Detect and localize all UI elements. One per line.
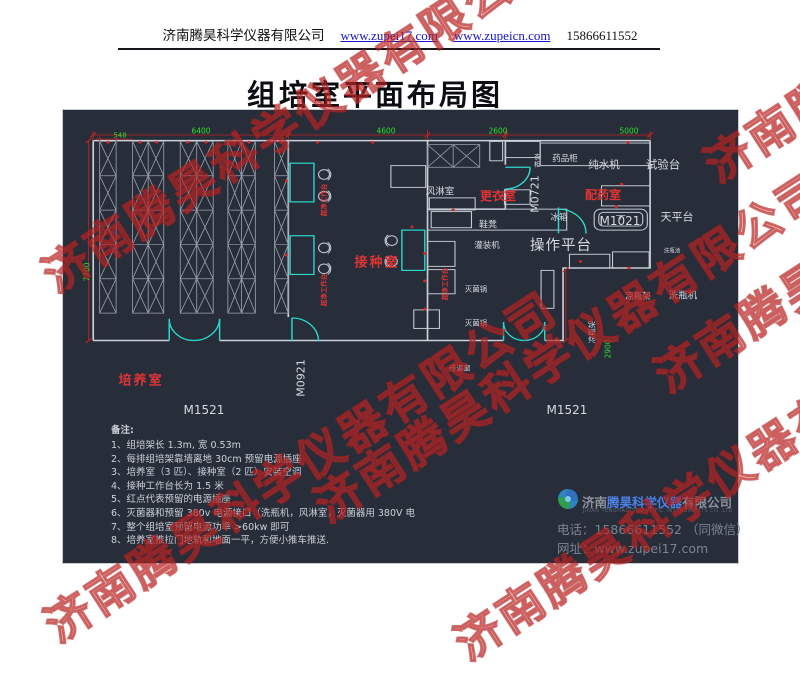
label-operation-platform: 操作平台 bbox=[530, 239, 592, 254]
footer-phone-number: 15866611552 （同微信） bbox=[595, 522, 749, 537]
room-label-culture: 培养室 bbox=[118, 375, 163, 388]
label-pure-water-machine: 纯水机 bbox=[588, 160, 620, 171]
label-door-m0721: M0721 bbox=[530, 175, 541, 213]
label-wardrobe: 衣柜 bbox=[533, 154, 540, 169]
label-test-bench: 试验台 bbox=[646, 159, 681, 171]
footer-company-english: JINAN TENGHAO SCIENTIFIC INSTRUMENTS CO.… bbox=[583, 508, 733, 514]
footer-web-label: 网址： bbox=[557, 541, 595, 556]
label-door-m1521-right: M1521 bbox=[547, 404, 588, 416]
header-phone: 15866611552 bbox=[566, 28, 637, 44]
dim-7700: 7700 bbox=[83, 262, 91, 281]
label-clean-bench-1: 超净工作台 bbox=[321, 184, 328, 217]
label-sterilizer-1: 灭菌锅 bbox=[465, 285, 488, 293]
note-item: 8、培养室推拉门地轨和地面一平，方便小推车推送. bbox=[111, 534, 541, 548]
operation-platform-box bbox=[428, 209, 567, 230]
air-shower-box bbox=[391, 166, 426, 188]
label-bottle-rack-v: 凉瓶架 bbox=[588, 321, 596, 344]
footer-phone-label: 电话： bbox=[557, 522, 595, 537]
page-title: 组培室平面布局图 bbox=[247, 72, 503, 114]
footer-phone: 电话：15866611552 （同微信） bbox=[557, 519, 748, 538]
label-medicine-cabinet: 药品柜 bbox=[552, 155, 578, 164]
label-fridge: 冰箱 bbox=[550, 214, 567, 223]
header-link-zupei17[interactable]: www.zupei17.com bbox=[340, 28, 437, 44]
label-door-m1521-left: M1521 bbox=[184, 404, 225, 416]
label-balance-table: 天平台 bbox=[661, 212, 694, 223]
header-company: 济南腾昊科学仪器有限公司 bbox=[162, 24, 324, 44]
dim-5000: 5000 bbox=[619, 127, 638, 135]
note-item: 7、整个组培室预留电源功率 >60kw 即可 bbox=[111, 521, 541, 535]
notes-heading: 备注: bbox=[111, 422, 541, 436]
note-item: 4、接种工作台长为 1.5 米 bbox=[111, 480, 541, 494]
label-air-shower: 风淋室 bbox=[426, 187, 455, 197]
filling-machine-box bbox=[431, 212, 471, 228]
transfer-window-box bbox=[414, 310, 440, 329]
header: 济南腾昊科学仪器有限公司 www.zupei17.com www.zupeicn… bbox=[0, 24, 800, 44]
changing-room-rack bbox=[428, 145, 480, 168]
floorplan-canvas: 培养室 接种室 更衣室 配药室 风淋室 药品柜 衣柜 纯水机 试验台 天平台 冰… bbox=[62, 109, 739, 564]
door-m1521-left bbox=[169, 319, 219, 341]
footer-website: 网址：www.zupei17.com bbox=[557, 538, 708, 557]
page: { "header": { "company": "济南腾昊科学仪器有限公司",… bbox=[0, 0, 800, 600]
dim-2900: 2900 bbox=[604, 339, 612, 358]
culture-rack-shelves bbox=[100, 141, 289, 313]
bottle-rack-h-box bbox=[569, 254, 609, 268]
door-m0921 bbox=[292, 318, 319, 341]
label-shoe-bench: 鞋凳 bbox=[479, 222, 497, 231]
label-bottle-rack-h: 凉瓶架 bbox=[625, 293, 651, 302]
label-door-m0921: M0921 bbox=[296, 359, 307, 397]
door-m1521-right bbox=[504, 322, 545, 341]
label-sterilizer-2: 灭菌锅 bbox=[465, 319, 488, 327]
shoe-bench-box bbox=[429, 198, 475, 210]
label-bottle-washer: 洗瓶机 bbox=[669, 291, 698, 301]
dim-2600: 2600 bbox=[488, 127, 507, 135]
notes-block: 备注: 1、组培架长 1.3m, 宽 0.53m 2、每排组培架靠墙离地 30c… bbox=[111, 422, 541, 548]
sterilizer-box-1 bbox=[428, 241, 455, 266]
header-link-zupeicn[interactable]: www.zupeicn.com bbox=[454, 28, 551, 44]
header-divider bbox=[118, 48, 660, 50]
label-clean-bench-2: 超净工作台 bbox=[321, 274, 328, 307]
note-item: 1、组培架长 1.3m, 宽 0.53m bbox=[111, 439, 541, 453]
label-transfer-window: 传递窗 bbox=[450, 366, 471, 373]
label-filling-machine: 灌装机 bbox=[474, 242, 500, 251]
room-label-dispensing: 配药室 bbox=[585, 189, 621, 201]
room-label-inoculation: 接种室 bbox=[354, 257, 399, 270]
note-item: 5、红点代表预留的电源插座 bbox=[111, 493, 541, 507]
dim-6400: 6400 bbox=[191, 127, 210, 135]
wardrobe-box bbox=[490, 141, 503, 160]
bottle-rack-v-box bbox=[541, 270, 554, 308]
room-label-changing: 更衣室 bbox=[480, 190, 516, 202]
footer-web-url[interactable]: www.zupei17.com bbox=[595, 541, 709, 556]
bottle-washer-box bbox=[613, 252, 650, 268]
dim-4600: 4600 bbox=[376, 127, 395, 135]
company-logo-icon bbox=[557, 488, 579, 510]
label-wash-sink: 洗瓶池 bbox=[664, 249, 681, 255]
note-item: 3、培养室（3 匹）、接种室（2 匹）安装空调 bbox=[111, 466, 541, 480]
note-item: 6、灭菌器和预留 380v 电源接口（洗瓶机，风淋室，灭菌器用 380V 电 bbox=[111, 507, 541, 521]
label-door-m1021: M1021 bbox=[600, 215, 641, 227]
door-m0721 bbox=[505, 167, 530, 189]
label-clean-bench-3: 超净工作台 bbox=[442, 268, 449, 301]
note-item: 2、每排组培架靠墙离地 30cm 预留电源插座 bbox=[111, 453, 541, 467]
dim-548: 548 bbox=[113, 133, 126, 140]
